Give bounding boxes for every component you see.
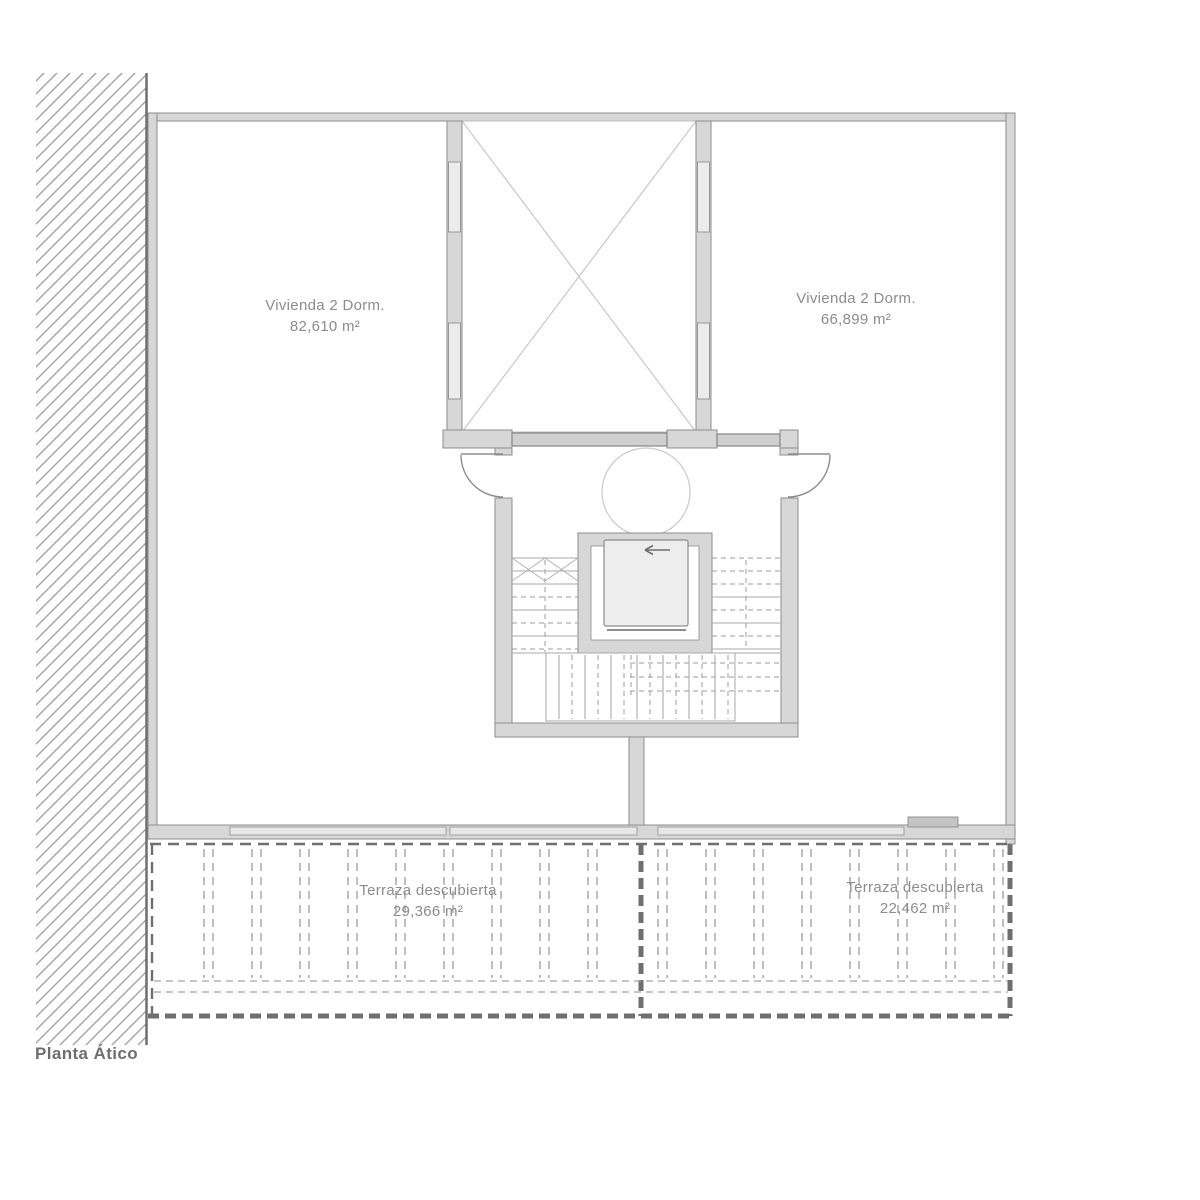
terrace-right-label: Terraza descubierta 22,462 m²	[846, 877, 983, 919]
void-shaft	[447, 121, 711, 432]
stair-flight-left	[512, 558, 578, 652]
turning-circle	[602, 448, 690, 536]
terrace-right-name: Terraza descubierta	[846, 877, 983, 898]
floor-plan-drawing	[0, 0, 1200, 1200]
apartment-left-label: Vivienda 2 Dorm. 82,610 m²	[265, 295, 385, 337]
core-wall-east	[781, 498, 798, 737]
door-left	[461, 454, 503, 497]
terrace-left-label: Terraza descubierta 29,366 m²	[359, 880, 496, 922]
apartment-left-area: 82,610 m²	[265, 316, 385, 337]
stair-core	[443, 430, 830, 737]
core-window-band	[512, 433, 780, 446]
threshold-step	[908, 817, 958, 827]
terrace-left-area: 29,366 m²	[359, 901, 496, 922]
party-wall	[629, 737, 644, 825]
door-right	[788, 454, 830, 497]
core-wall-west	[495, 498, 512, 737]
elevator	[578, 533, 712, 653]
wall-top	[148, 113, 1015, 121]
apartment-right-area: 66,899 m²	[796, 309, 916, 330]
terraces	[148, 844, 1015, 1016]
wall-left	[148, 113, 157, 839]
terrace-left-name: Terraza descubierta	[359, 880, 496, 901]
terrace-inner-lines	[154, 981, 1008, 992]
plan-title: Planta Ático	[35, 1044, 138, 1064]
apartment-right-name: Vivienda 2 Dorm.	[796, 288, 916, 309]
floor-plan-sheet: Vivienda 2 Dorm. 82,610 m² Vivienda 2 Do…	[0, 0, 1200, 1200]
apartment-right-label: Vivienda 2 Dorm. 66,899 m²	[796, 288, 916, 330]
apartment-left-name: Vivienda 2 Dorm.	[265, 295, 385, 316]
hatched-adjacent-strip	[36, 73, 147, 1045]
bottom-wall-glazing	[230, 827, 904, 835]
terrace-boundaries	[148, 844, 1015, 1016]
wall-right	[1006, 113, 1015, 844]
terrace-right-area: 22,462 m²	[846, 898, 983, 919]
core-wall-south	[495, 723, 798, 737]
elevator-car	[604, 540, 688, 626]
